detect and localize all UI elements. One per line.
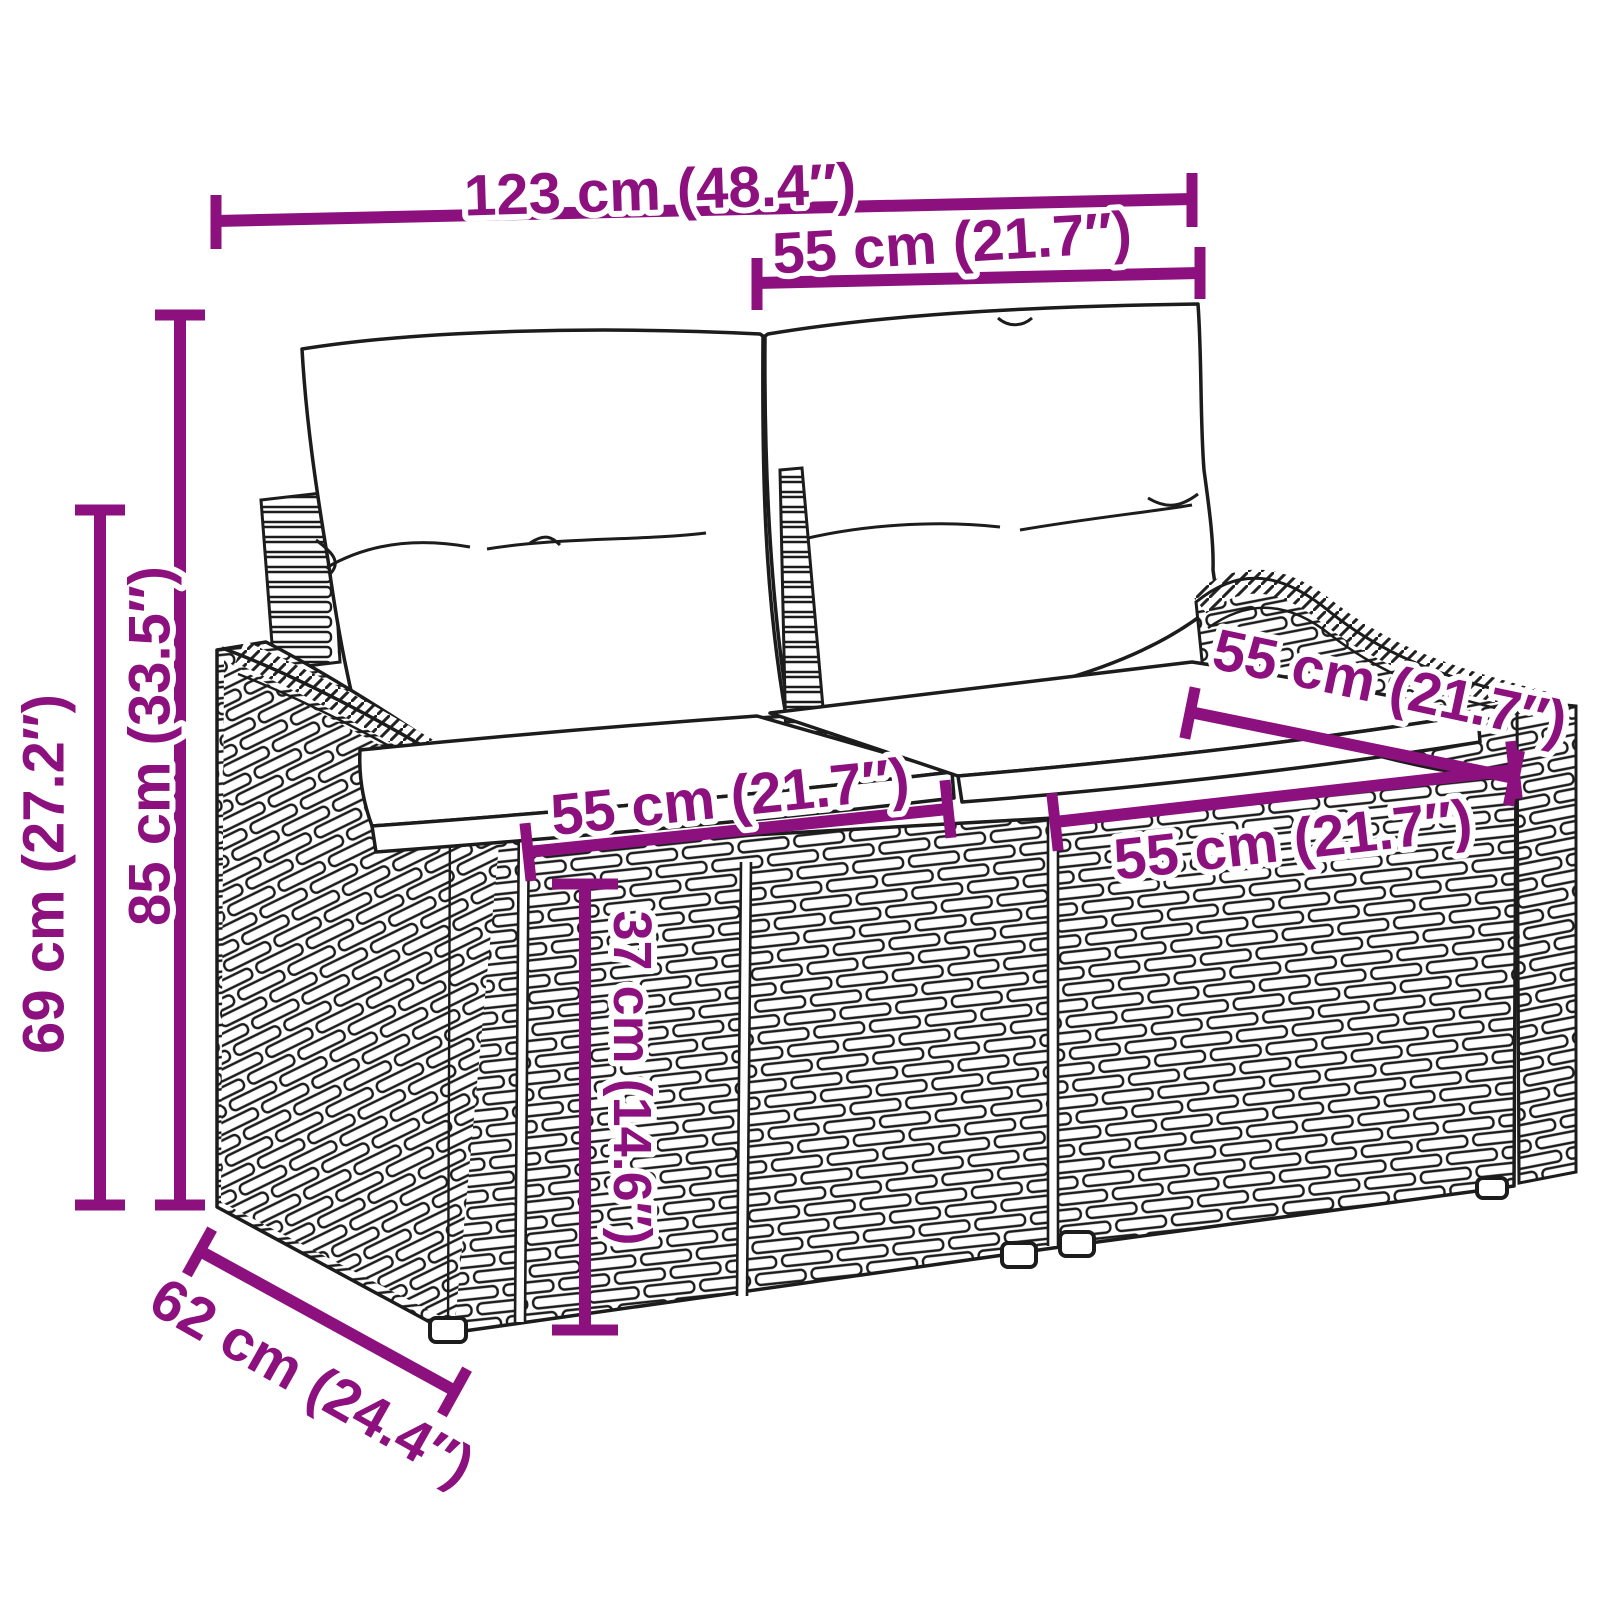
dimension-label-seat-height: 37 cm (14.6″) [602, 910, 662, 1245]
armrest-right-column [1517, 700, 1576, 1183]
dimension-label-armrest-height: 69 cm (27.2″) [12, 694, 77, 1054]
back-pillow-left [302, 330, 786, 752]
dimension-label-overall-width: 123 cm (48.4″) [463, 151, 857, 228]
dimension-label-overall-height: 85 cm (33.5″) [118, 566, 183, 926]
diagram-page: 123 cm (48.4″) 55 cm (21.7″) 85 cm (33.5… [0, 0, 1600, 1600]
dimension-armrest-height: 69 cm (27.2″) [12, 505, 126, 1211]
back-pillow-right [765, 304, 1216, 720]
dimension-overall-height: 85 cm (33.5″) [118, 310, 206, 1211]
diagram-canvas: 123 cm (48.4″) 55 cm (21.7″) 85 cm (33.5… [0, 0, 1600, 1600]
